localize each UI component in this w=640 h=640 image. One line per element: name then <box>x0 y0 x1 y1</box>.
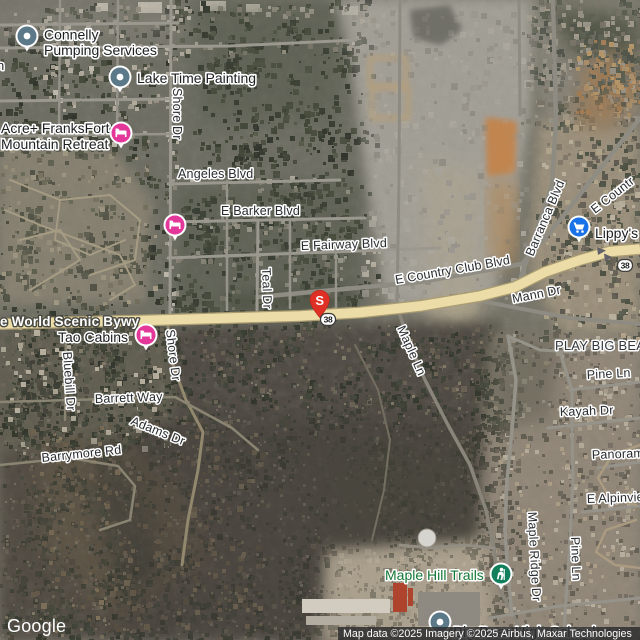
svg-text:S: S <box>315 293 324 308</box>
svg-text:Pumping Services: Pumping Services <box>44 42 157 58</box>
svg-text:Map data ©2025 Imagery ©2025 A: Map data ©2025 Imagery ©2025 Airbus, Max… <box>343 628 632 640</box>
svg-text:PLAY BIG BEA: PLAY BIG BEA <box>555 338 640 353</box>
svg-text:Connelly: Connelly <box>44 27 98 43</box>
svg-text:Kayah Dr: Kayah Dr <box>560 403 614 419</box>
svg-text:e World Scenic Bywy: e World Scenic Bywy <box>0 314 140 329</box>
svg-text:Tao Cabins: Tao Cabins <box>58 329 128 345</box>
svg-text:E Barker Blvd: E Barker Blvd <box>221 204 300 218</box>
svg-text:Maple Hill Trails: Maple Hill Trails <box>385 567 484 583</box>
svg-text:n: n <box>0 58 4 73</box>
svg-text:Mountain Retreat: Mountain Retreat <box>1 136 109 152</box>
svg-text:Google: Google <box>7 616 66 636</box>
svg-text:Lake Time Painting: Lake Time Painting <box>137 70 256 86</box>
svg-text:Angeles Blvd: Angeles Blvd <box>178 167 253 181</box>
svg-text:Acre+ FranksFort: Acre+ FranksFort <box>1 120 110 136</box>
svg-text:Panoram: Panoram <box>592 446 640 462</box>
svg-text:38: 38 <box>621 261 630 271</box>
svg-text:Teal Dr: Teal Dr <box>259 268 274 309</box>
svg-text:Lippy's: Lippy's <box>595 225 638 241</box>
svg-text:38: 38 <box>324 315 333 325</box>
svg-text:Pine Ln: Pine Ln <box>568 537 584 581</box>
svg-text:Pine Ln: Pine Ln <box>586 366 630 382</box>
svg-text:Shore Dr: Shore Dr <box>170 88 184 140</box>
svg-text:E Alpinvie: E Alpinvie <box>587 490 640 506</box>
svg-text:Barrett Way: Barrett Way <box>95 390 164 406</box>
